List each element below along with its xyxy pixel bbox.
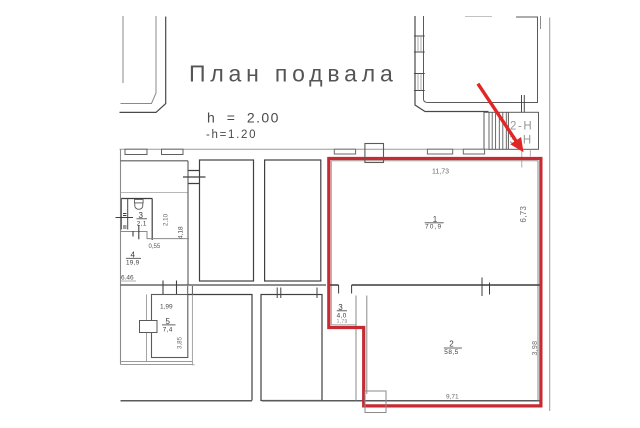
svg-text:1,79: 1,79 bbox=[337, 319, 348, 325]
svg-text:5: 5 bbox=[166, 317, 171, 326]
svg-text:1,99: 1,99 bbox=[160, 304, 173, 311]
svg-text:3,85: 3,85 bbox=[177, 336, 184, 349]
svg-text:6,73: 6,73 bbox=[519, 206, 528, 223]
svg-text:3,98: 3,98 bbox=[532, 341, 539, 356]
svg-text:2: 2 bbox=[449, 339, 454, 348]
svg-text:2,1: 2,1 bbox=[137, 220, 147, 227]
svg-text:7,4: 7,4 bbox=[163, 326, 173, 333]
svg-text:0,55: 0,55 bbox=[149, 244, 161, 250]
svg-text:58,5: 58,5 bbox=[444, 349, 458, 356]
svg-text:9,71: 9,71 bbox=[446, 394, 459, 401]
svg-text:2-Н: 2-Н bbox=[510, 121, 533, 133]
svg-text:6.46: 6.46 bbox=[121, 275, 134, 282]
svg-text:4,18: 4,18 bbox=[178, 226, 185, 239]
svg-text:План подвала: План подвала bbox=[189, 61, 398, 87]
svg-text:-h=1.20: -h=1.20 bbox=[206, 129, 257, 141]
svg-text:11,73: 11,73 bbox=[432, 169, 449, 176]
svg-text:2,10: 2,10 bbox=[163, 213, 170, 226]
svg-text:h = 2.00: h = 2.00 bbox=[207, 110, 280, 126]
svg-text:70,9: 70,9 bbox=[425, 224, 442, 231]
svg-text:19,9: 19,9 bbox=[126, 259, 140, 266]
